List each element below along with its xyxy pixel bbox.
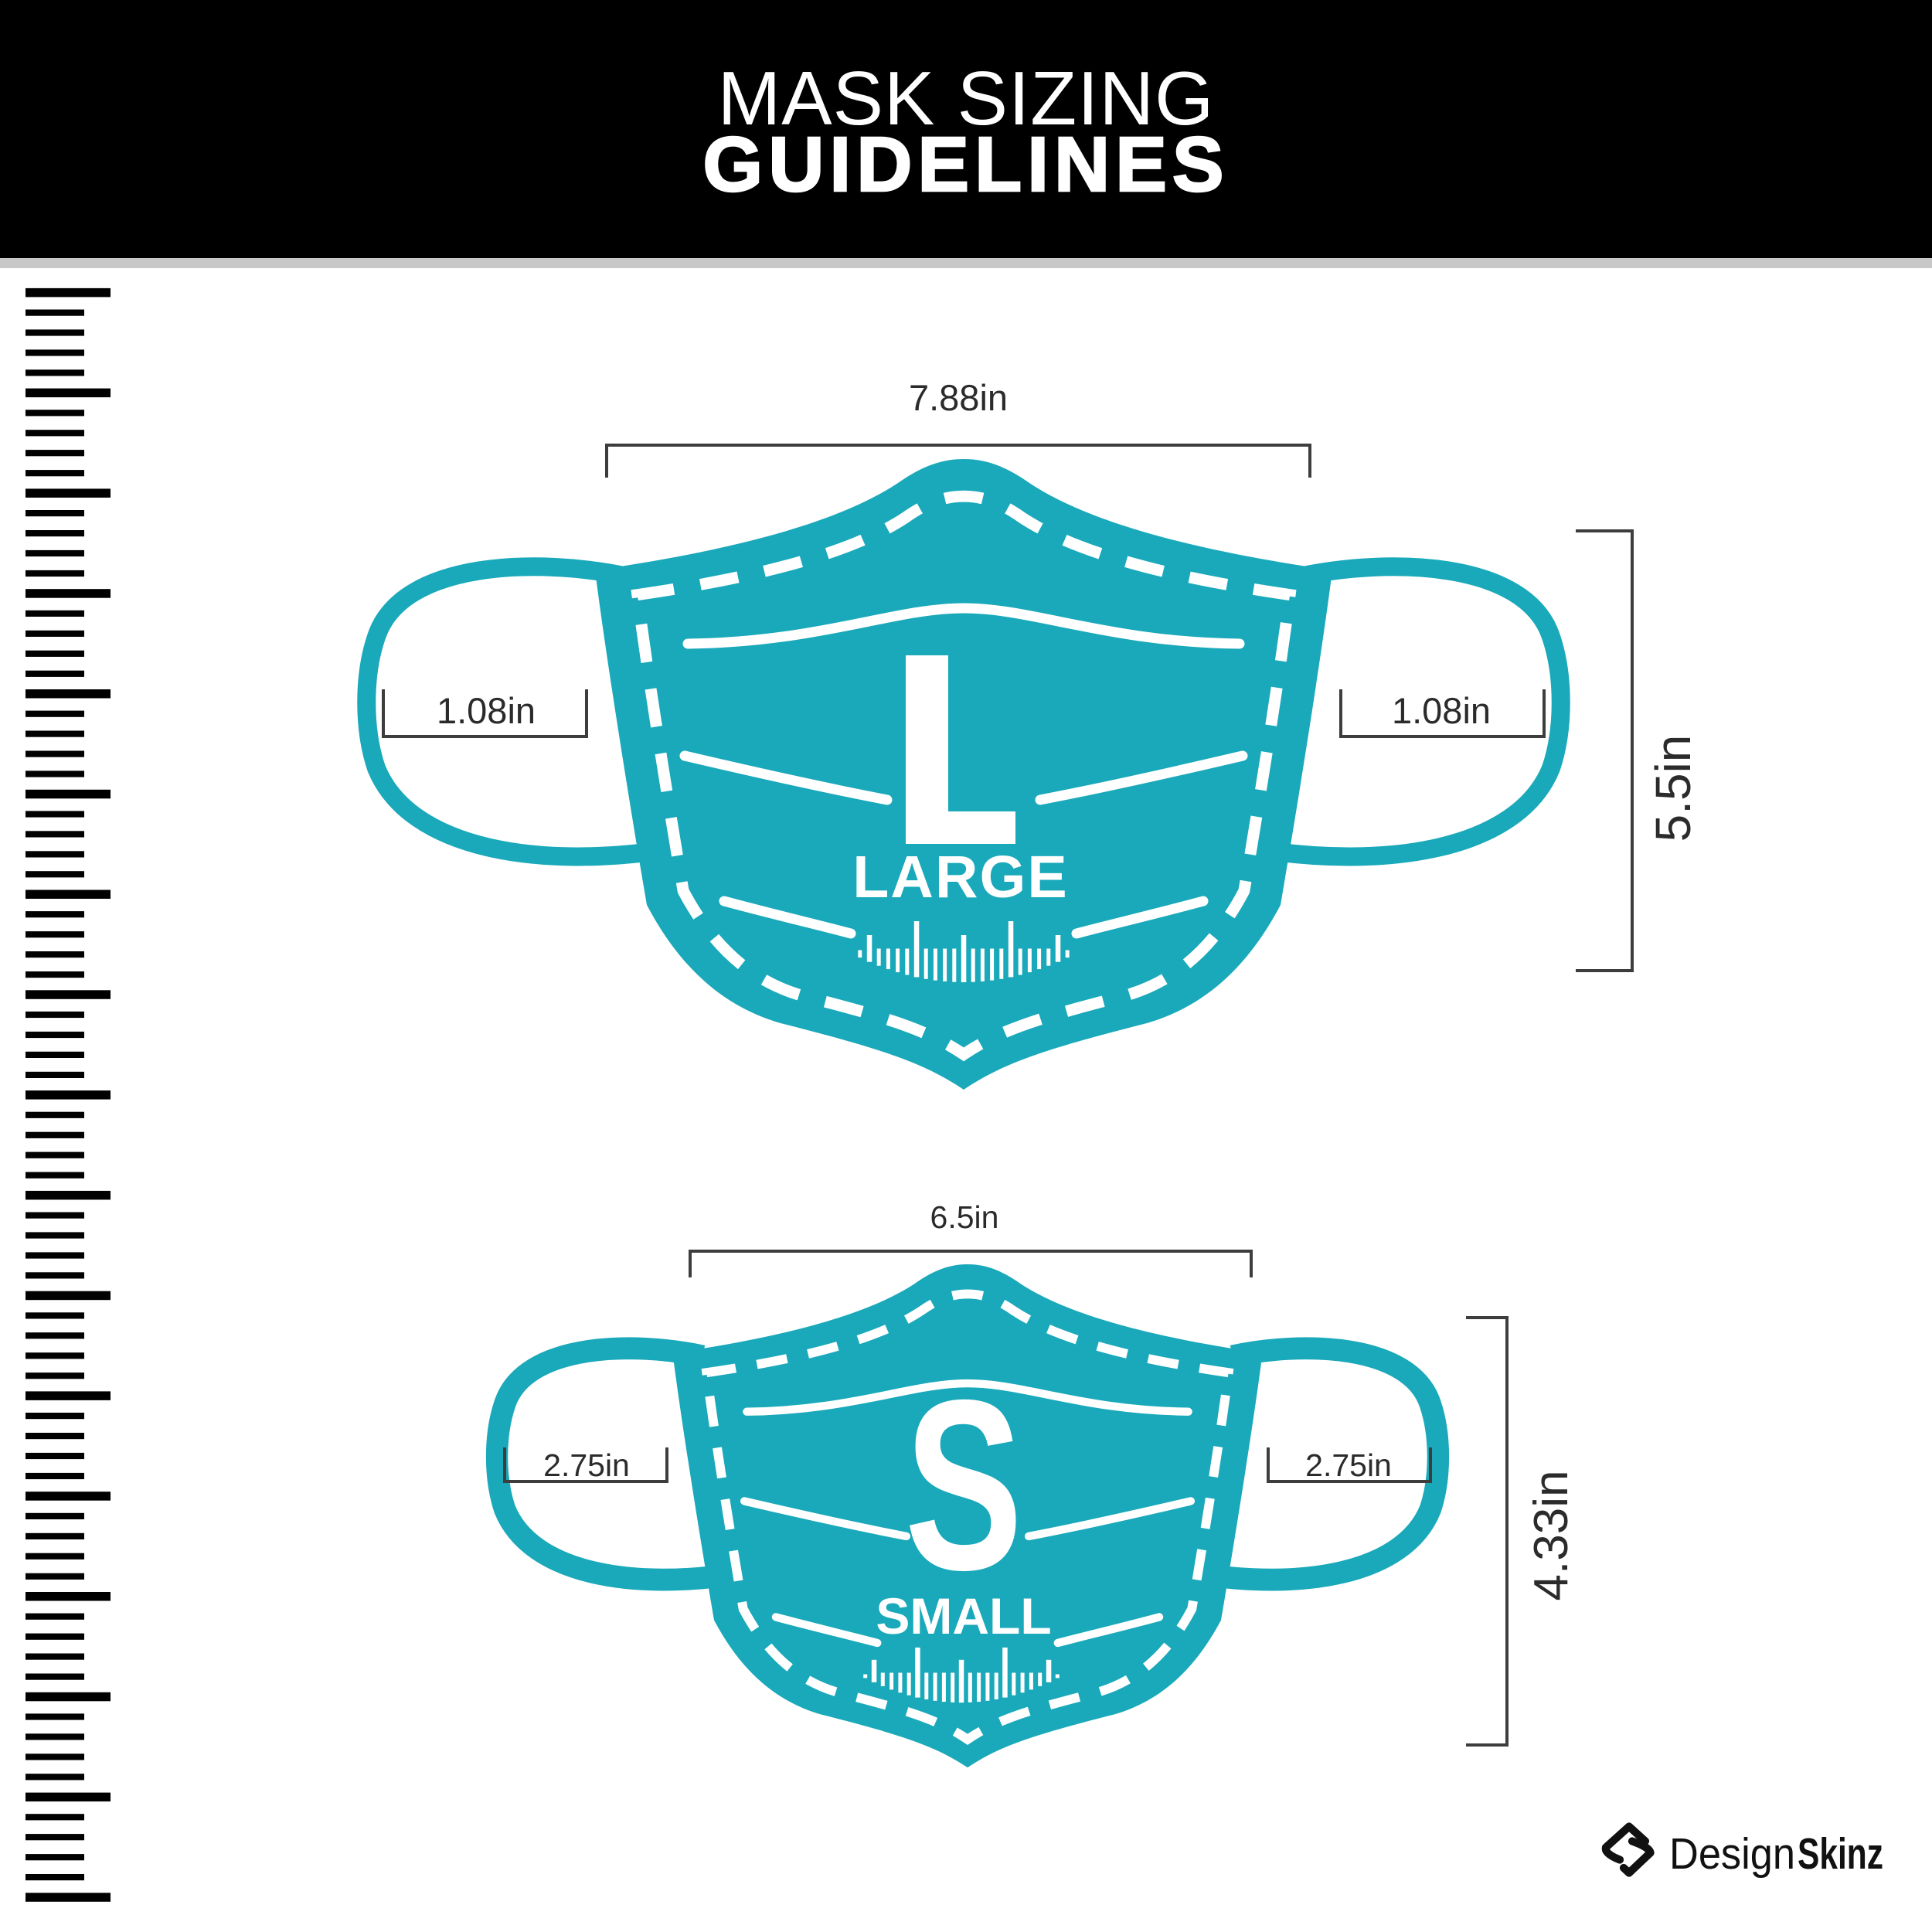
svg-text:2.75in: 2.75in <box>543 1447 630 1483</box>
svg-text:5.5in: 5.5in <box>1645 735 1701 842</box>
svg-text:6.5in: 6.5in <box>930 1199 999 1235</box>
svg-text:LARGE: LARGE <box>852 844 1069 910</box>
svg-text:7.88in: 7.88in <box>909 377 1008 418</box>
svg-text:Skinz: Skinz <box>1798 1829 1883 1879</box>
svg-text:1.08in: 1.08in <box>1392 690 1491 731</box>
svg-text:2.75in: 2.75in <box>1305 1447 1392 1483</box>
svg-text:S: S <box>905 1350 1023 1621</box>
svg-text:Design: Design <box>1669 1829 1795 1879</box>
svg-text:GUIDELINES: GUIDELINES <box>702 121 1229 208</box>
svg-text:1.08in: 1.08in <box>437 690 536 731</box>
svg-text:SMALL: SMALL <box>876 1587 1051 1645</box>
svg-text:4.33in: 4.33in <box>1525 1471 1578 1601</box>
